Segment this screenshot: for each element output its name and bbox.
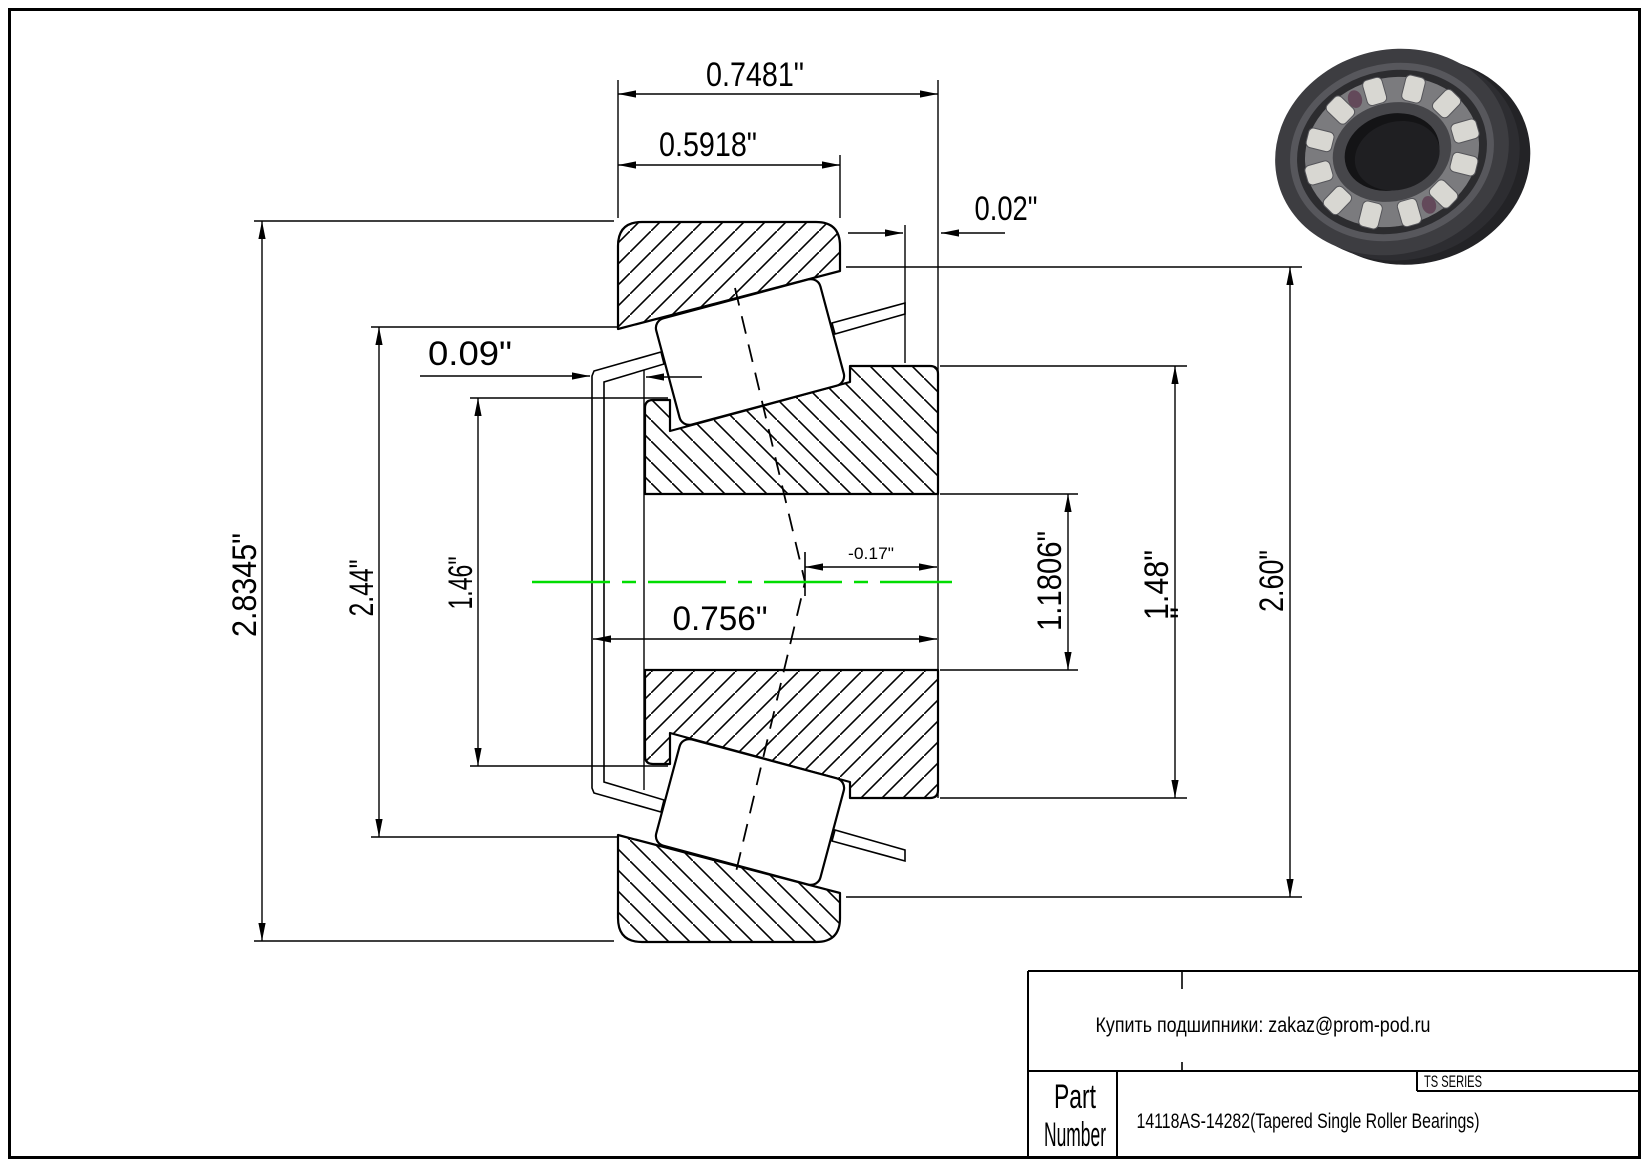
dim-label-cone-front-od: 1.46" [442, 557, 480, 610]
dim-label-rib-dia-overflow: " [1164, 607, 1202, 619]
dim-label-cage-standout: 0.09" [428, 335, 512, 373]
dim-label-bore-dia: 1.1806" [1031, 531, 1069, 631]
dim-label-flange-od: 2.44" [343, 560, 381, 617]
dim-label-effective-center: -0.17" [848, 544, 894, 563]
dim-label-cage-clearance: 0.02" [975, 190, 1038, 228]
dim-label-total-width: 0.7481" [706, 56, 804, 94]
bearing-engineering-drawing: 0.7481" 0.5918" 0.02" 0.09" 2.8345" 2.44… [0, 0, 1649, 1167]
contact-text: Купить подшипники: zakaz@prom-pod.ru [1096, 1014, 1431, 1037]
part-number-value: 14118AS-14282(Tapered Single Roller Bear… [1137, 1110, 1480, 1133]
dim-label-cone-width: 0.756" [673, 600, 768, 638]
part-number-label-line1: Part [1054, 1078, 1096, 1116]
series-label: TS SERIES [1424, 1072, 1482, 1091]
dim-label-cup-id: 2.60" [1253, 550, 1291, 612]
dim-label-cup-width: 0.5918" [659, 126, 757, 164]
dim-label-cup-od: 2.8345" [226, 533, 264, 637]
part-number-label-line2: Number [1044, 1116, 1106, 1154]
drawing-page: 0.7481" 0.5918" 0.02" 0.09" 2.8345" 2.44… [0, 0, 1649, 1167]
